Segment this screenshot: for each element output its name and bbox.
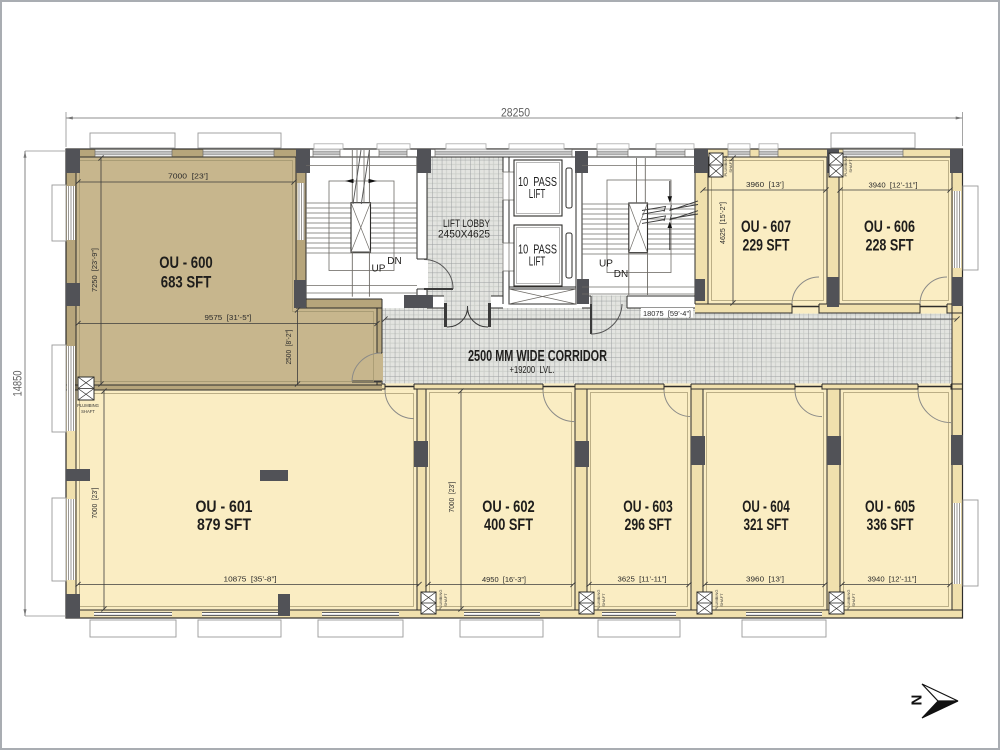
svg-text:OU - 604: OU - 604	[742, 498, 790, 516]
svg-text:296 SFT: 296 SFT	[625, 516, 672, 534]
svg-text:9575 [31’-5”]: 9575 [31’-5”]	[205, 315, 252, 322]
svg-text:7000 [23’]: 7000 [23’]	[449, 481, 456, 512]
svg-text:7250 [23’-9”]: 7250 [23’-9”]	[92, 248, 99, 292]
svg-text:3960 [13’]: 3960 [13’]	[746, 182, 784, 189]
svg-text:OU - 603: OU - 603	[623, 498, 673, 516]
svg-text:3940 [12’-11”]: 3940 [12’-11”]	[868, 577, 917, 584]
svg-text:OU - 605: OU - 605	[865, 498, 915, 516]
svg-text:10875 [35’-8”]: 10875 [35’-8”]	[224, 577, 277, 584]
svg-text:SHAFT: SHAFT	[851, 593, 856, 607]
svg-text:336 SFT: 336 SFT	[867, 516, 914, 534]
svg-text:LIFT: LIFT	[529, 187, 546, 201]
svg-text:SHAFT: SHAFT	[728, 159, 733, 173]
svg-text:+19200 LVL.: +19200 LVL.	[510, 364, 555, 376]
svg-text:400 SFT: 400 SFT	[484, 516, 533, 534]
svg-text:229 SFT: 229 SFT	[743, 237, 790, 255]
svg-text:2500 MM WIDE CORRIDOR: 2500 MM WIDE CORRIDOR	[468, 348, 607, 365]
svg-text:3960 [13’]: 3960 [13’]	[746, 577, 784, 584]
svg-text:28250: 28250	[501, 106, 530, 120]
svg-text:N: N	[908, 695, 925, 706]
svg-text:SHAFT: SHAFT	[719, 593, 724, 607]
svg-text:18075 [59’-4”]: 18075 [59’-4”]	[643, 311, 691, 318]
svg-text:SHAFT: SHAFT	[848, 159, 853, 173]
svg-text:UP: UP	[372, 264, 386, 275]
svg-text:4625 [15’-2”]: 4625 [15’-2”]	[720, 202, 727, 244]
svg-text:2500 [8’-2”]: 2500 [8’-2”]	[286, 329, 293, 364]
svg-text:DN: DN	[387, 256, 401, 267]
svg-text:7000 [23’]: 7000 [23’]	[92, 487, 99, 518]
svg-text:228 SFT: 228 SFT	[866, 237, 914, 255]
svg-text:2450X4625: 2450X4625	[438, 229, 490, 241]
svg-text:14850: 14850	[11, 370, 25, 396]
svg-text:OU - 600: OU - 600	[159, 254, 213, 272]
svg-text:321 SFT: 321 SFT	[744, 516, 789, 534]
svg-text:DN: DN	[614, 269, 628, 280]
svg-text:SHAFT: SHAFT	[601, 593, 606, 607]
svg-text:LIFT: LIFT	[529, 255, 546, 269]
svg-text:SHAFT: SHAFT	[443, 593, 448, 607]
svg-text:7000 [23’]: 7000 [23’]	[168, 174, 208, 181]
svg-text:683 SFT: 683 SFT	[161, 274, 212, 292]
svg-text:OU - 606: OU - 606	[864, 218, 915, 236]
svg-text:3940 [12’-11”]: 3940 [12’-11”]	[869, 183, 918, 190]
svg-text:3625 [11’-11”]: 3625 [11’-11”]	[618, 577, 667, 584]
svg-text:879 SFT: 879 SFT	[197, 516, 251, 534]
svg-text:PLUMBING: PLUMBING	[77, 403, 99, 408]
svg-text:SHAFT: SHAFT	[81, 409, 95, 414]
svg-text:OU - 601: OU - 601	[196, 498, 253, 516]
svg-text:OU - 602: OU - 602	[482, 498, 535, 516]
svg-text:4950 [16’-3”]: 4950 [16’-3”]	[482, 577, 526, 584]
svg-text:UP: UP	[599, 259, 613, 270]
svg-text:OU - 607: OU - 607	[741, 218, 791, 236]
